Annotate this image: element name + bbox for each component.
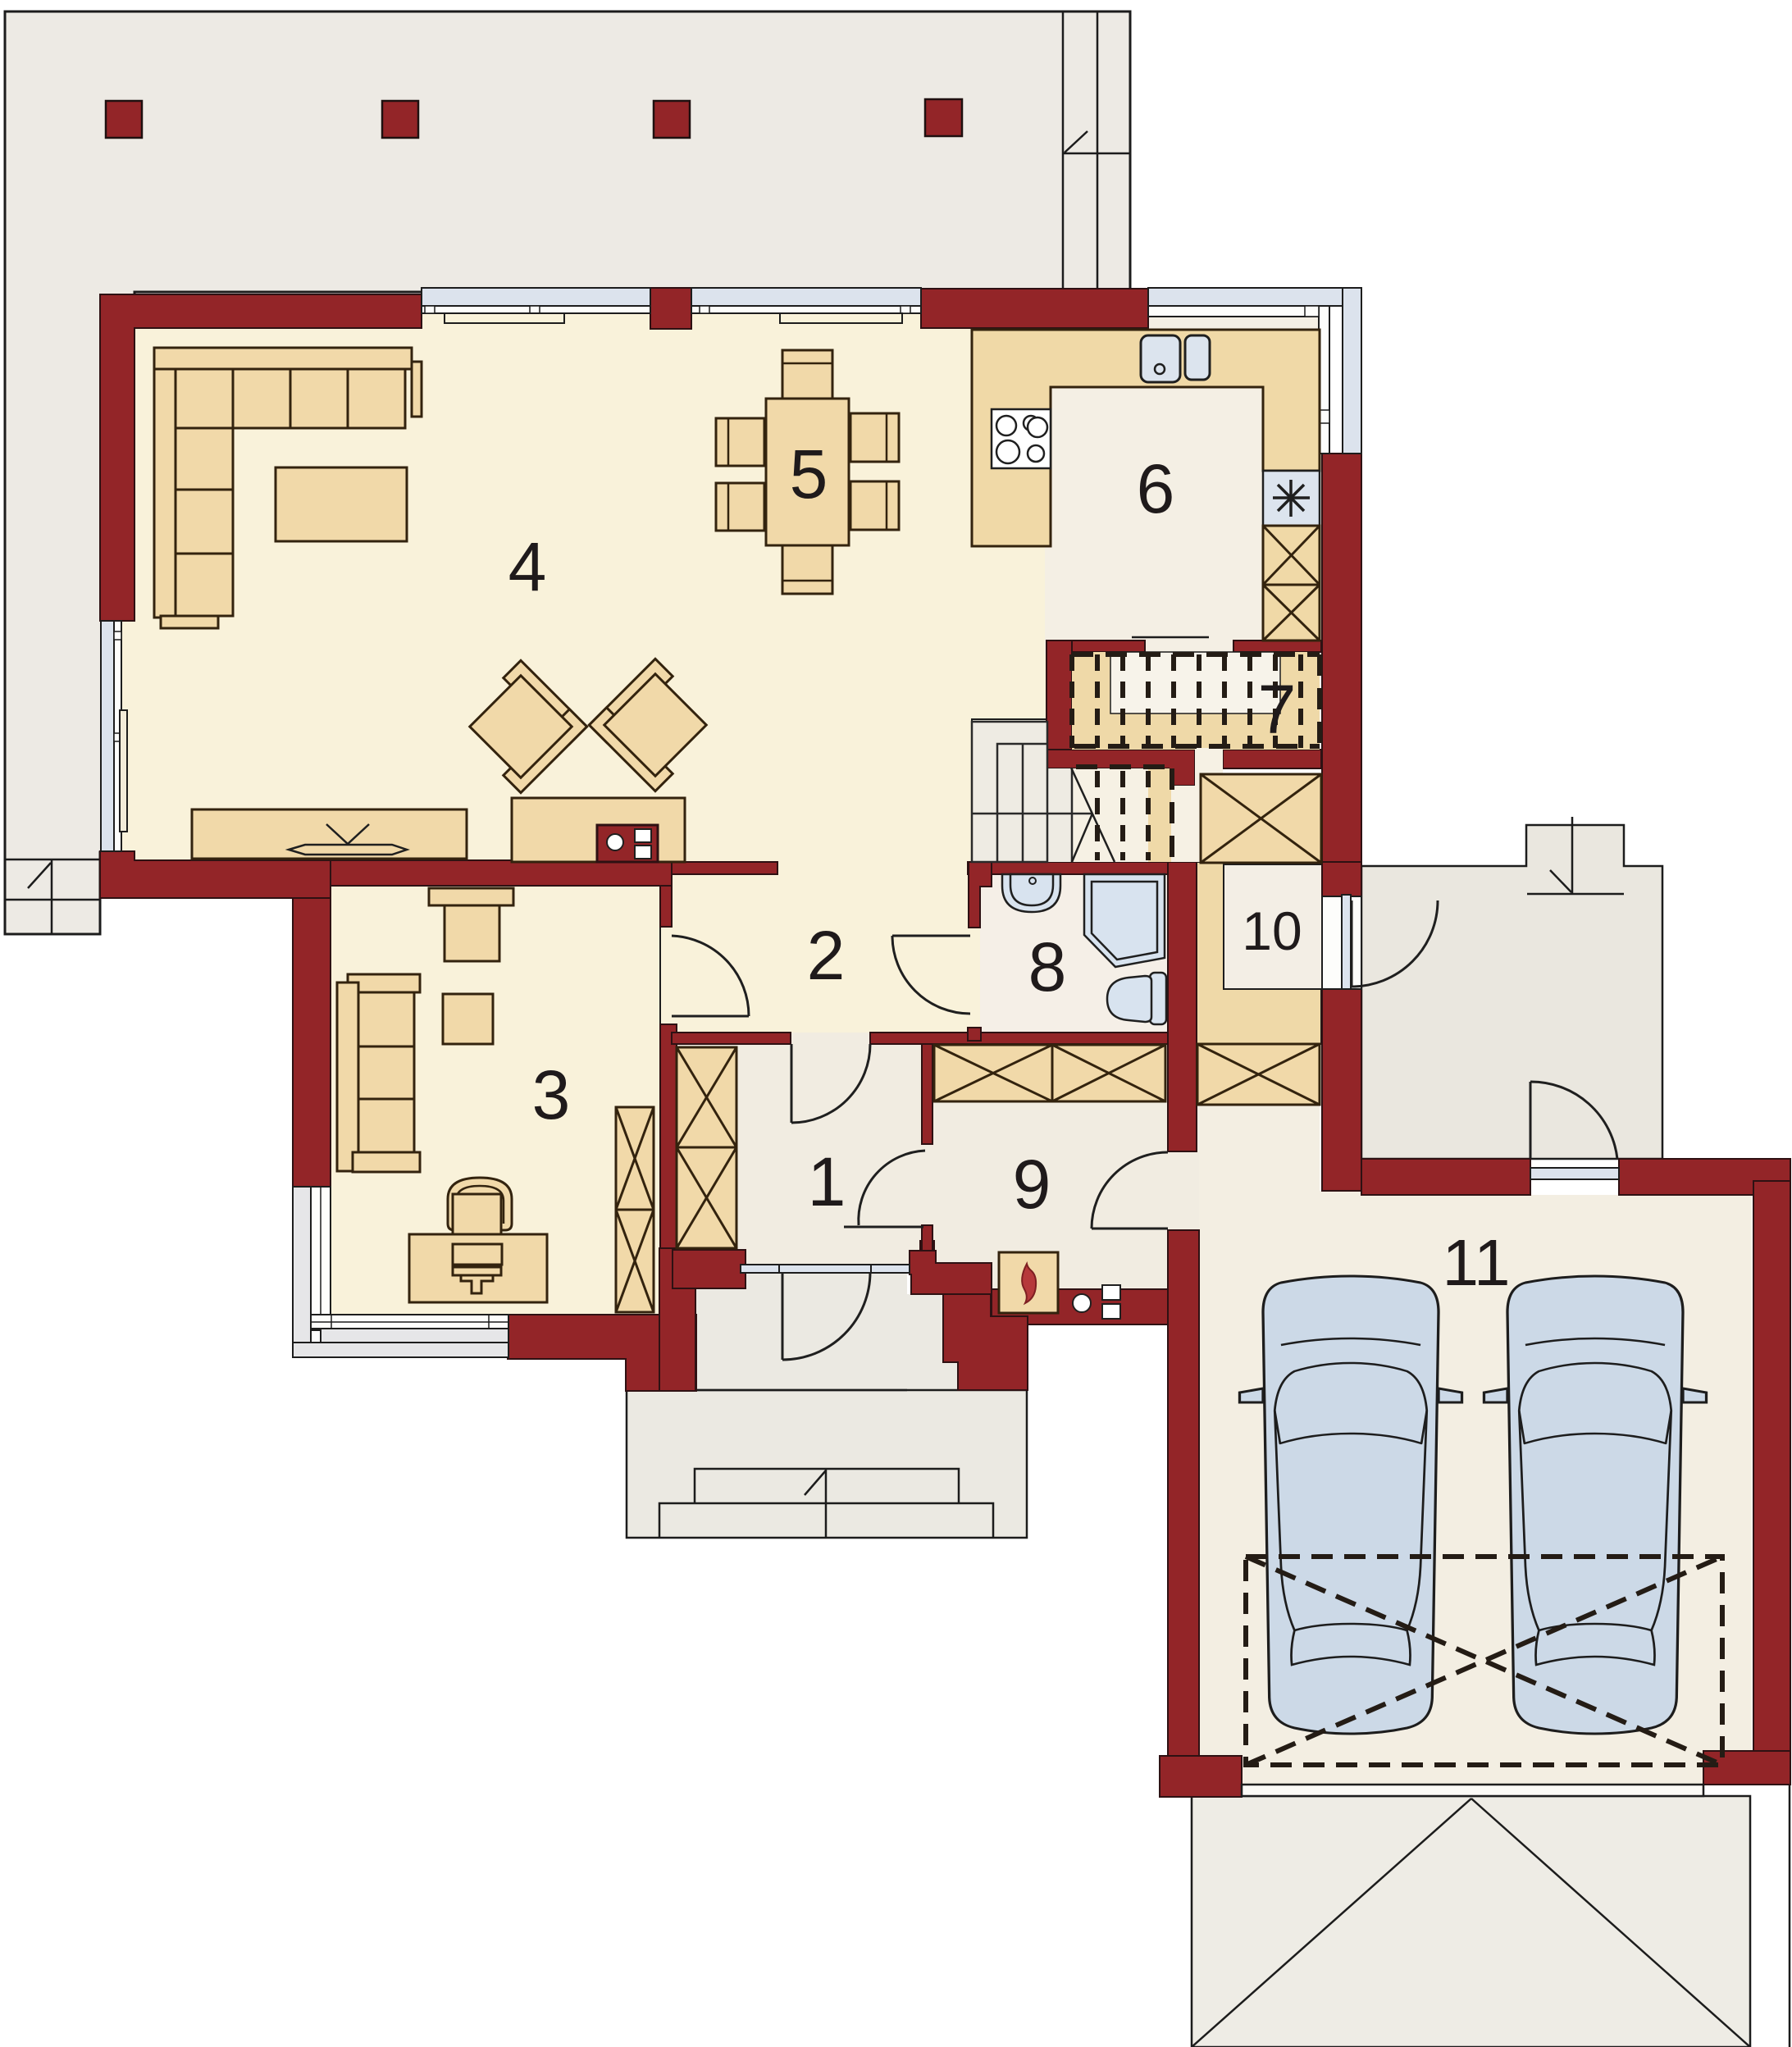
svg-text:9: 9 [1013,1146,1051,1223]
svg-text:3: 3 [532,1056,571,1133]
svg-text:6: 6 [1137,450,1175,527]
svg-text:11: 11 [1442,1226,1510,1299]
svg-text:2: 2 [807,917,846,994]
svg-text:8: 8 [1028,928,1067,1005]
svg-text:5: 5 [790,435,828,513]
svg-text:1: 1 [808,1143,846,1220]
svg-text:10: 10 [1242,900,1302,961]
svg-text:7: 7 [1258,671,1297,748]
svg-text:4: 4 [508,528,547,605]
